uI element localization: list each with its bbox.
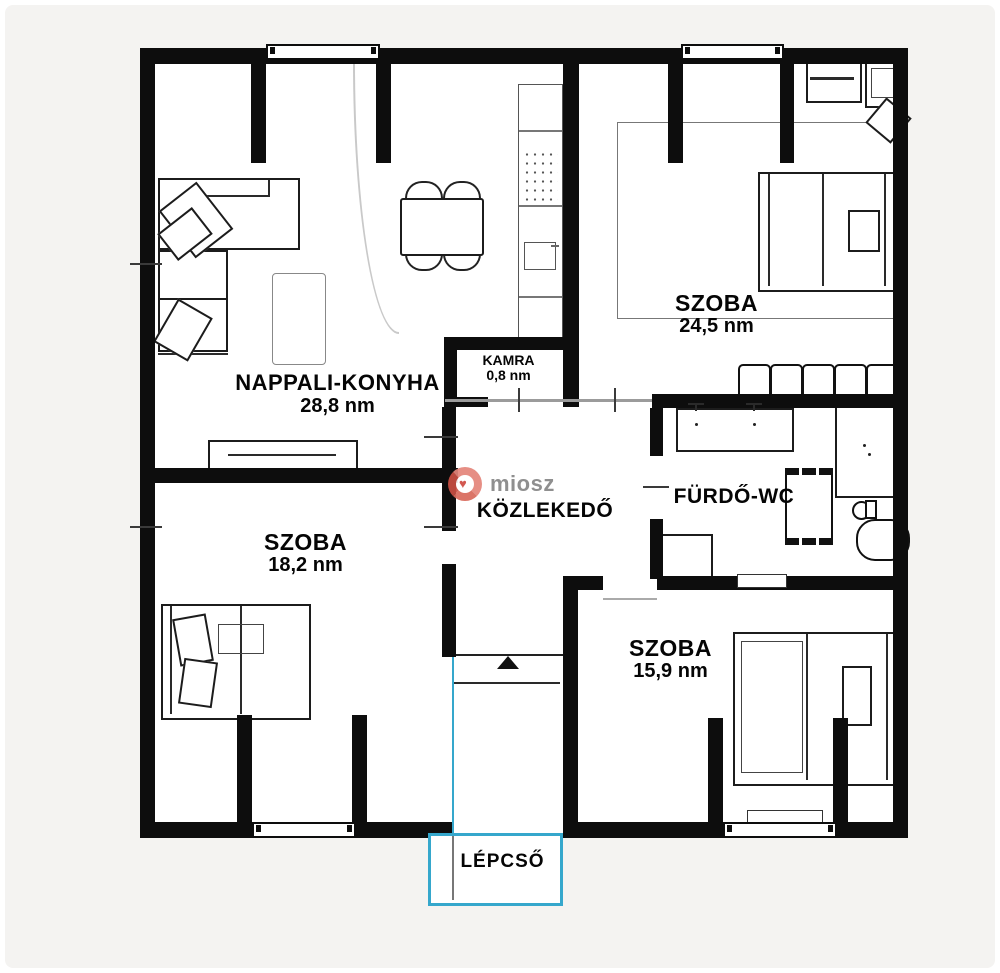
kitchen-counter [518, 84, 563, 342]
kitchen-divider [519, 205, 562, 207]
room-name: SZOBA [578, 636, 763, 660]
wall-szoba15-left [563, 590, 578, 838]
sofa-mid-section [158, 250, 228, 300]
side-table-inner [871, 68, 895, 98]
living-rug [272, 273, 326, 365]
room-name: FÜRDŐ-WC [645, 485, 823, 509]
watermark: ♥ miosz [448, 467, 555, 501]
window-cap [828, 825, 833, 832]
bed-blanket-line [822, 174, 824, 286]
wall-bath-left [650, 408, 663, 456]
window-cap [256, 825, 261, 832]
window-cap [727, 825, 732, 832]
section-tick [130, 263, 162, 265]
wall-pier [833, 718, 848, 825]
wall-kamra-top [444, 337, 579, 350]
room-label-furdo: FÜRDŐ-WC [645, 485, 823, 509]
wall-pier [708, 718, 723, 825]
plan-background: NAPPALI-KONYHA 28,8 nm SZOBA 24,5 nm KAM… [5, 5, 995, 968]
stairs-up-arrow [497, 656, 519, 669]
sofa-back-corner [268, 180, 270, 197]
door-leaf [603, 598, 657, 600]
room-name: SZOBA [624, 291, 809, 315]
bed-pillow [848, 210, 880, 252]
room-name: KÖZLEKEDŐ [440, 499, 650, 523]
shower-drain [863, 444, 866, 447]
sink-vanity [676, 408, 794, 452]
bed-pillow [178, 658, 218, 708]
room-label-szoba24: SZOBA 24,5 nm [624, 291, 809, 338]
bed-blanket [218, 624, 264, 654]
sink-tap [551, 245, 559, 247]
section-tick [130, 526, 162, 528]
wall-pier [251, 60, 266, 163]
wall-pier [376, 60, 391, 163]
wall-hall-left [442, 564, 456, 657]
bed-headboard-line [884, 174, 886, 286]
window-cap [270, 47, 275, 54]
door-tick [614, 388, 616, 412]
room-label-szoba15: SZOBA 15,9 nm [578, 636, 763, 683]
shower-drain [868, 453, 871, 456]
room-area: 24,5 nm [624, 315, 809, 338]
room-label-kozlekedo: KÖZLEKEDŐ [440, 499, 650, 523]
tap-icon [695, 403, 697, 411]
window [681, 44, 784, 60]
bed-blanket-line [806, 634, 808, 780]
door-tick [424, 526, 458, 528]
door-tick [518, 388, 520, 412]
room-label-lepcso: LÉPCSŐ [440, 851, 565, 873]
window [252, 822, 356, 838]
room-label-nappali: NAPPALI-KONYHA 28,8 nm [205, 371, 470, 418]
bed-double [758, 172, 902, 292]
watermark-text: miosz [490, 471, 555, 497]
wall-pier [352, 715, 367, 825]
room-area: 18,2 nm [213, 554, 398, 577]
wall-bath-top [652, 394, 908, 408]
shower [835, 406, 902, 498]
stove [523, 150, 558, 202]
room-name: SZOBA [213, 530, 398, 554]
wall-left [140, 48, 155, 838]
room-label-kamra: KAMRA 0,8 nm [446, 353, 571, 383]
toilet-tank [865, 500, 877, 519]
wall-pier [780, 60, 794, 163]
window-cap [775, 47, 780, 54]
wall-living-szoba18 [140, 468, 458, 483]
room-name: KAMRA [446, 353, 571, 368]
window-cap [347, 825, 352, 832]
bed-pillow [842, 666, 872, 726]
door-tick [424, 436, 458, 438]
window-cap [685, 47, 690, 54]
floor-plan: NAPPALI-KONYHA 28,8 nm SZOBA 24,5 nm KAM… [0, 0, 1000, 973]
room-name: LÉPCSŐ [440, 851, 565, 873]
kitchen-divider [519, 130, 562, 132]
tap-icon [753, 403, 755, 411]
bed-headboard-line [886, 634, 888, 780]
towel-radiator [737, 574, 787, 588]
kitchen-divider [519, 296, 562, 298]
wall-bath-left [650, 519, 663, 579]
stairs-landing-line [454, 682, 560, 684]
window [723, 822, 837, 838]
room-label-szoba18: SZOBA 18,2 nm [213, 530, 398, 577]
heart-icon: ♥ [459, 476, 467, 491]
bed-foot-line [768, 174, 770, 286]
wall-pier [237, 715, 252, 825]
room-area: 28,8 nm [205, 395, 470, 418]
tv-stand-detail [228, 454, 336, 456]
sink-drain [753, 423, 756, 426]
dining-table [400, 198, 484, 256]
window-cap [371, 47, 376, 54]
wall-szoba15-top [563, 576, 603, 590]
window [266, 44, 380, 60]
sofa-base-line [158, 353, 228, 355]
room-area: 0,8 nm [446, 368, 571, 383]
dresser-line [810, 77, 854, 80]
wall-right [893, 48, 908, 838]
room-name: NAPPALI-KONYHA [205, 371, 470, 395]
sink-drain [695, 423, 698, 426]
dresser [806, 60, 862, 103]
bathroom-cabinet [661, 534, 713, 582]
bed-blanket-line [240, 606, 242, 714]
room-area: 15,9 nm [578, 660, 763, 683]
wall-pier [668, 60, 683, 163]
miosz-logo-icon: ♥ [448, 467, 482, 501]
